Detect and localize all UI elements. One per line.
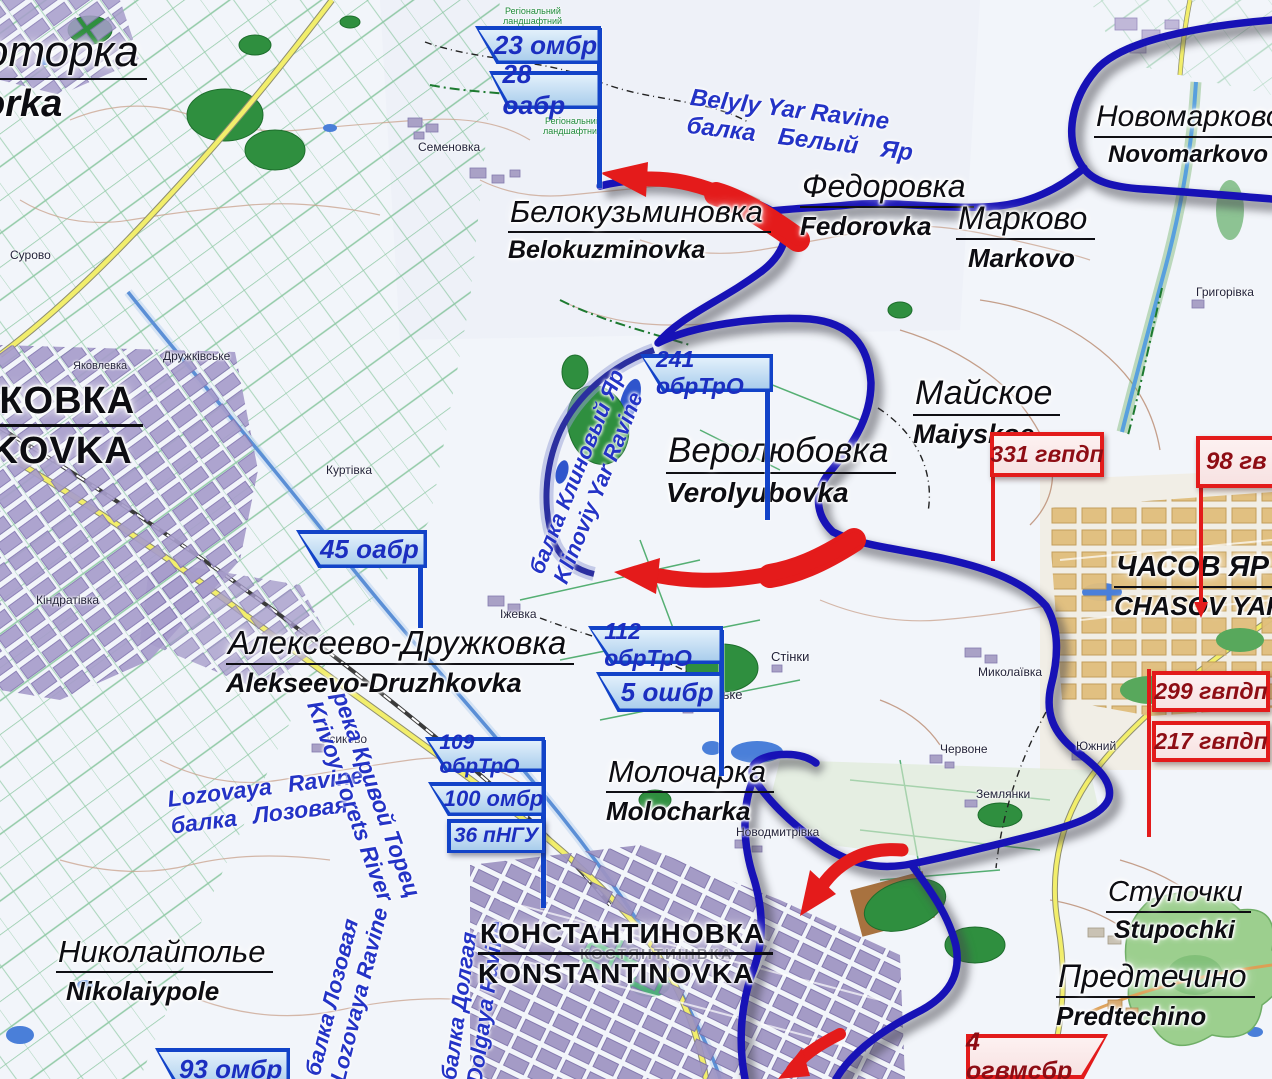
place-translit: Alekseevo-Druzhkovka (226, 668, 574, 699)
unit-flag-label: 112 обрТрО (588, 626, 723, 664)
place-name: Веролюбовка (666, 433, 896, 474)
map-label-druzhkivske: Дружківське (163, 349, 230, 363)
place-label-markovo: Марково Markovo (956, 202, 1095, 274)
map-label-novodmytrivka: Новодмитрівка (736, 825, 819, 839)
place-translit: Nikolaiypole (56, 976, 273, 1007)
flag-pole (765, 392, 770, 520)
place-label-molocharka: Молочарка Molocharka (606, 756, 774, 827)
unit-flag-28-oabr: 28 оабр (489, 71, 601, 109)
unit-flag-label: 5 ошбр (596, 672, 723, 712)
place-translit: orka (0, 83, 147, 126)
place-label-novomarkovo: Новомарково Novomarkovo (1094, 102, 1272, 169)
place-name: Молочарка (606, 756, 774, 793)
unit-flag-5-oshbr: 5 ошбр (596, 672, 723, 712)
place-name: КОНСТАНТИНОВКА (478, 920, 773, 955)
map-label-kurtivka: Куртівка (326, 463, 372, 477)
unit-flag-label: 331 гвпдп (990, 432, 1104, 477)
map-label-semenovka: Семеновка (418, 140, 480, 154)
map-label-stinki: Стінки (771, 649, 809, 664)
place-name: Майское (913, 376, 1060, 416)
unit-flag-100-ombr: 100 омбр (428, 782, 545, 816)
place-translit: Molocharka (606, 796, 774, 827)
map-label-surovo: Сурово (10, 248, 51, 262)
place-name: ЖКОВКА (0, 382, 143, 427)
unit-flag-label: 100 омбр (428, 782, 545, 816)
park-label: ландшафтний (543, 126, 602, 136)
place-name: Николайполье (56, 936, 273, 973)
place-label-belokuzminovka: Белокузьминовка Belokuzminovka (508, 196, 771, 265)
unit-flag-98-gv: 98 гв (1196, 436, 1272, 488)
unit-flag-label: 36 пНГУ (447, 819, 545, 853)
place-translit: Stupochki (1106, 916, 1251, 945)
map-label-yuzhnyi: Южний (1076, 739, 1116, 753)
unit-flag-label: 93 омбр (155, 1048, 290, 1079)
unit-flag-112-obrtro: 112 обрТрО (588, 626, 723, 664)
flag-pole (991, 477, 995, 561)
place-translit: Verolyubovka (666, 477, 896, 509)
place-translit: Novomarkovo (1094, 141, 1272, 169)
map-label-chervone: Червоне (940, 742, 988, 756)
flag-pole (1147, 669, 1151, 837)
flag-pole (418, 566, 423, 628)
place-name: Алексеево-Дружковка (226, 626, 574, 665)
place-translit: Belokuzminovka (508, 236, 771, 265)
unit-flag-label: 217 гвпдп (1152, 721, 1270, 762)
unit-flag-label: 299 гвпдп (1152, 671, 1270, 712)
unit-flag-217-gvpdp: 217 гвпдп (1152, 721, 1270, 762)
place-translit: Markovo (956, 243, 1095, 274)
unit-flag-label: 28 оабр (489, 71, 601, 109)
place-label-chasov-yar: ЧАСОВ ЯР CHASOV YAR (1114, 553, 1272, 622)
unit-flag-241-obrtro: 241 обрТрО (640, 354, 773, 392)
unit-flag-label: 241 обрТрО (640, 354, 773, 392)
unit-flag-4-ogvmsbr: 4 огвмсбр (966, 1034, 1108, 1079)
place-label-stupochki: Ступочки Stupochki (1106, 878, 1251, 945)
place-label-alekseevo-druzhkovka: Алексеево-Дружковка Alekseevo-Druzhkovka (226, 626, 574, 699)
map-label-hryhorivka: Григорівка (1196, 285, 1254, 299)
unit-flag-label: 98 гв (1196, 436, 1272, 488)
map-label-zemlyanki: Землянки (976, 787, 1030, 801)
place-name: Предтечино (1056, 960, 1255, 998)
map-label-mykolaivka: Миколаївка (978, 665, 1042, 679)
place-name: оторка (0, 30, 147, 80)
place-label-nikolaiypole: Николайполье Nikolaiypole (56, 936, 273, 1007)
arrowhead-icon (1194, 602, 1208, 618)
map-label-yakovlevka: Яковлевка (73, 360, 127, 372)
place-translit: CHASOV YAR (1114, 591, 1272, 622)
map-label-kindrativka: Кіндратівка (36, 593, 99, 607)
park-label: ландшафтний (503, 16, 562, 26)
place-label-predtechino: Предтечино Predtechino (1056, 960, 1255, 1032)
unit-flag-label: 4 огвмсбр (966, 1034, 1108, 1079)
place-translit: HKOVKA (0, 430, 143, 473)
place-name: Федоровка (800, 170, 974, 208)
unit-flag-36-pngu: 36 пНГУ (447, 819, 545, 853)
place-name: Новомарково (1094, 102, 1272, 138)
map-label-izhevka: Іжевка (500, 607, 537, 621)
place-name: Марково (956, 202, 1095, 240)
place-name: ЧАСОВ ЯР (1114, 553, 1272, 588)
war-situation-map: 23 омбр 28 оабр 241 обрТрО 45 оабр 112 о… (0, 0, 1272, 1079)
flag-pole (1199, 488, 1203, 604)
unit-flag-93-ombr: 93 омбр (155, 1048, 290, 1079)
place-label-fedorovka: Федоровка Fedorovka (800, 170, 974, 242)
unit-flag-109-obrtro: 109 обрТрО (425, 737, 545, 772)
place-translit: Fedorovka (800, 211, 974, 242)
park-label: Регіональний (505, 6, 561, 16)
place-name: Ступочки (1106, 878, 1251, 913)
unit-flag-331-gvpdp: 331 гвпдп (990, 432, 1104, 477)
place-label-partial-otorka: оторка orka (0, 30, 147, 126)
unit-flag-45-oabr: 45 оабр (296, 530, 427, 568)
place-translit: KONSTANTINOVKA (478, 958, 773, 990)
place-name: Белокузьминовка (508, 196, 771, 233)
place-label-partial-zhkovka: ЖКОВКА HKOVKA (0, 382, 143, 473)
unit-flag-label: 45 оабр (296, 530, 427, 568)
unit-flag-label: 109 обрТрО (425, 737, 545, 772)
unit-flag-299-gvpdp: 299 гвпдп (1152, 671, 1270, 712)
place-label-verolyubovka: Веролюбовка Verolyubovka (666, 433, 896, 509)
place-label-konstantinovka: КОНСТАНТИНОВКА KONSTANTINOVKA (478, 920, 773, 990)
